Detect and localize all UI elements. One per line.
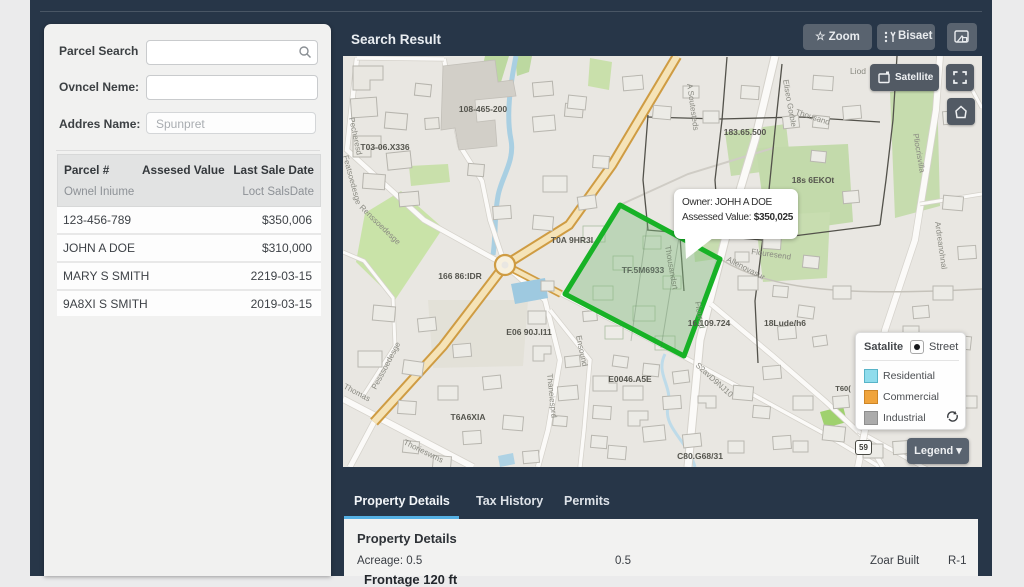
svg-text:TF.5M6933: TF.5M6933 [622, 265, 665, 275]
svg-text:183.65.500: 183.65.500 [724, 127, 767, 137]
svg-text:166 86:IDR: 166 86:IDR [438, 271, 481, 281]
svg-text:E06 90J.I11: E06 90J.I11 [506, 327, 552, 337]
svg-text:16.109.724: 16.109.724 [688, 318, 731, 328]
svg-text:T03-06.X336: T03-06.X336 [360, 142, 409, 152]
svg-text:108-465-200: 108-465-200 [459, 104, 507, 114]
svg-text:T6A6XIA: T6A6XIA [451, 412, 486, 422]
svg-text:Liod: Liod [850, 66, 866, 76]
svg-text:T60(: T60( [835, 384, 851, 393]
svg-text:18s 6EKOt: 18s 6EKOt [792, 175, 835, 185]
svg-text:C80.G68/31: C80.G68/31 [677, 451, 723, 461]
svg-text:E0046.A5E: E0046.A5E [608, 374, 652, 384]
svg-text:18Lude/h6: 18Lude/h6 [764, 318, 806, 328]
svg-text:T0A 9HR3I: T0A 9HR3I [551, 235, 593, 245]
